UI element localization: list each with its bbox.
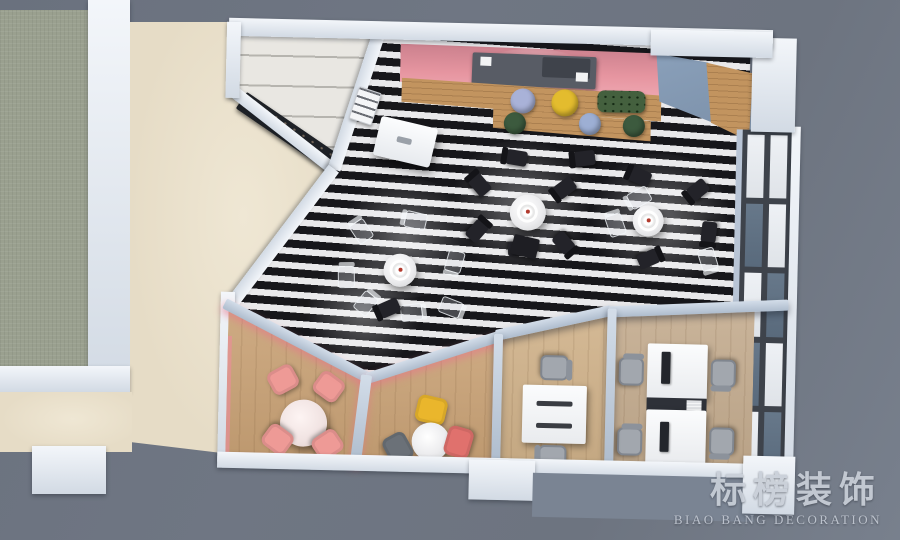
- office-desk: [645, 409, 706, 464]
- bar-picture-item: [480, 57, 491, 66]
- outer-wall-top-right-corner: [650, 29, 773, 58]
- dining-chair-ghost: [338, 266, 355, 288]
- office-desk: [647, 343, 708, 400]
- window-pane: [769, 135, 787, 199]
- watermark: 标榜装饰 BIAO BANG DECORATION: [674, 472, 882, 528]
- papers: [686, 400, 701, 410]
- bar-picture-item: [576, 72, 588, 81]
- office-chair: [618, 357, 644, 386]
- monitor: [659, 422, 669, 452]
- window-pane: [768, 204, 786, 268]
- dining-chair-dark: [505, 149, 528, 167]
- window-pane: [745, 204, 763, 268]
- outer-wall-bottom-block: [468, 459, 535, 500]
- office-chair: [710, 359, 736, 388]
- office-chair: [617, 427, 643, 456]
- monitor: [661, 352, 671, 384]
- dining-chair-dark: [573, 150, 596, 167]
- bar-bench-green: [597, 90, 645, 113]
- plate-stack: [640, 213, 655, 228]
- window-pane: [746, 135, 764, 199]
- plate-stack: [392, 262, 407, 277]
- plate-stack: [520, 204, 535, 219]
- dining-chair-dark: [700, 221, 717, 244]
- dining-chair-ghost: [400, 303, 424, 322]
- office-desk: [522, 385, 587, 444]
- office-chair: [540, 355, 569, 381]
- outer-wall-left-top: [225, 22, 241, 98]
- desk-drawer: [536, 423, 572, 429]
- watermark-brand-chinese: 标榜装饰: [674, 472, 882, 510]
- watermark-brand-english: BIAO BANG DECORATION: [674, 512, 882, 528]
- bar-back-counter: [471, 52, 596, 89]
- table-top-item: [396, 136, 412, 145]
- interior-render-scene: 标榜装饰 BIAO BANG DECORATION: [0, 0, 900, 540]
- building-unit: [0, 0, 900, 540]
- window-pane: [765, 343, 783, 407]
- office-chair: [709, 427, 735, 456]
- desk-drawer: [536, 401, 572, 407]
